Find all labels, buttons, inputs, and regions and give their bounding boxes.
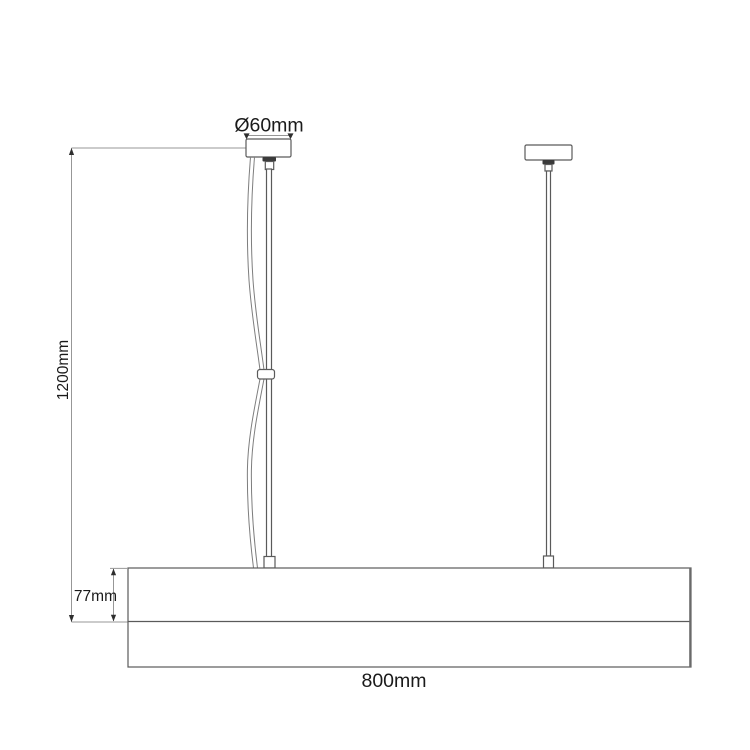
grip-collar xyxy=(545,165,552,172)
grip-nut xyxy=(543,160,555,165)
grip-nut xyxy=(263,157,277,162)
diagram-canvas: 1200mm Ø60mm xyxy=(0,0,750,750)
right-canopy xyxy=(525,145,572,160)
arrowhead-down xyxy=(111,615,116,622)
dimension-body-height: 77mm xyxy=(74,568,128,621)
arrowhead-up xyxy=(111,569,116,576)
lamp-body xyxy=(128,568,691,667)
dimension-canopy-diameter: Ø60mm xyxy=(234,115,303,140)
right-cord-grip xyxy=(543,160,555,171)
pendant-lamp-dimension-diagram: 1200mm Ø60mm xyxy=(0,0,750,750)
body-height-label: 77mm xyxy=(74,588,117,605)
left-canopy xyxy=(246,139,291,157)
lamp-body-outline xyxy=(128,568,691,667)
power-cord xyxy=(247,157,264,568)
dimension-body-width: 800mm xyxy=(361,670,426,692)
body-width-label: 800mm xyxy=(361,670,426,692)
dimension-suspension-length: 1200mm xyxy=(55,148,246,622)
left-rod-ferrule xyxy=(264,557,275,569)
suspension-wire-right xyxy=(547,171,551,556)
arrowhead-up xyxy=(69,148,74,155)
right-wire-ferrule xyxy=(544,556,554,568)
suspension-rod-left xyxy=(267,169,272,557)
power-cord-strand xyxy=(251,157,264,568)
left-cord-grip xyxy=(263,157,277,170)
arrowhead-down xyxy=(69,615,74,622)
grip-collar xyxy=(265,162,273,170)
canopy-diameter-label: Ø60mm xyxy=(234,115,303,137)
suspension-length-label: 1200mm xyxy=(55,340,72,400)
cord-clamp xyxy=(258,370,275,380)
power-cord-strand xyxy=(247,157,260,568)
